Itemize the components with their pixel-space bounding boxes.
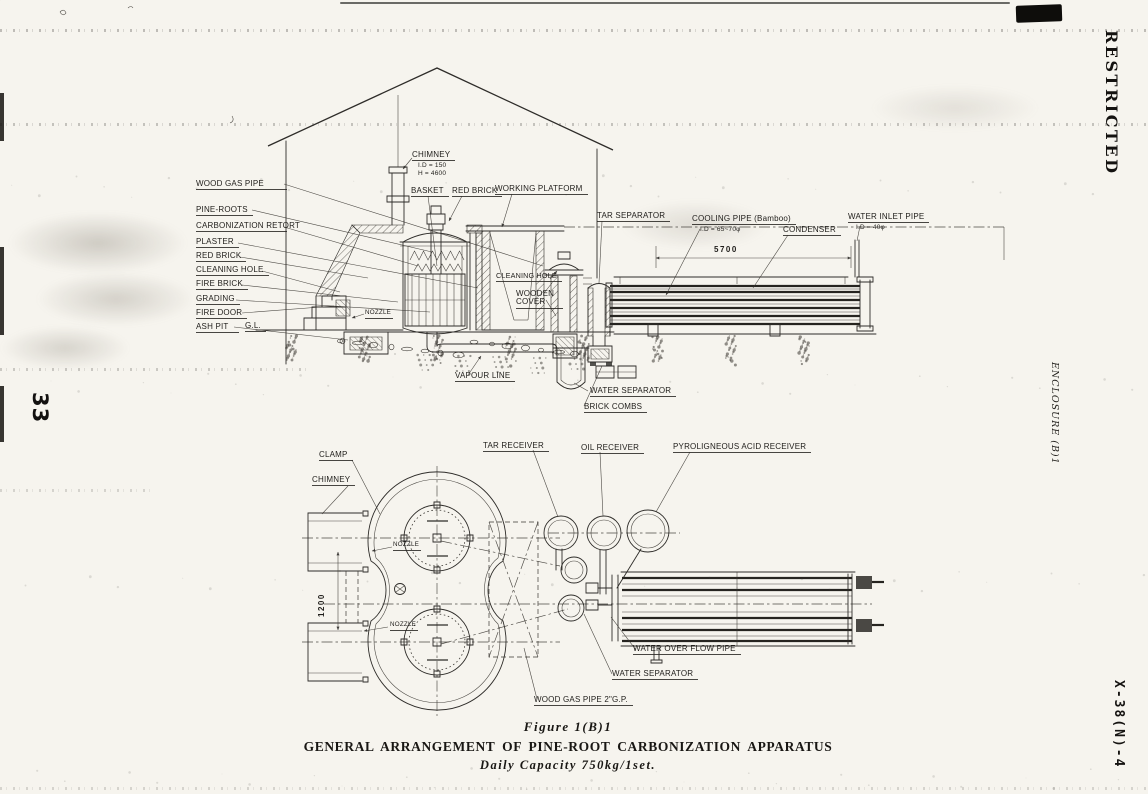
label-ash-pit: ASH PIT xyxy=(196,323,239,333)
drawing-canvas xyxy=(0,0,1148,794)
restricted-stamp: RESTRICTED xyxy=(1102,30,1121,162)
figure-number: Figure 1(B)1 xyxy=(288,719,848,735)
label-wood-gas-pipe: WOOD GAS PIPE xyxy=(196,180,287,190)
label-grading: GRADING xyxy=(196,295,240,305)
label-carbonization-retort: CARBONIZATION RETORT xyxy=(196,222,287,232)
brick-combs-section xyxy=(596,366,636,378)
cooling-pipes xyxy=(610,286,860,324)
plan-leader-lines xyxy=(322,450,690,699)
label-chimney-plan: CHIMNEY xyxy=(312,476,355,486)
dimension-5700-text: 5700 xyxy=(714,245,738,254)
label-working-platform: WORKING PLATFORM xyxy=(495,185,588,195)
dimension-1200-text: 1200 xyxy=(317,593,326,617)
condenser-section xyxy=(606,240,873,336)
water-separator-plan-group xyxy=(558,557,618,641)
stray-pen-marks xyxy=(60,7,233,124)
figure-caption: Figure 1(B)1 GENERAL ARRANGEMENT OF PINE… xyxy=(288,719,848,773)
label-water-inlet-pipe: WATER INLET PIPE xyxy=(848,213,929,223)
label-water-separator-plan: WATER SEPARATOR xyxy=(612,670,698,680)
label-pyroligneous-acid-receiver: PYROLIGNEOUS ACID RECEIVER xyxy=(673,443,811,453)
label-cleaning-hole: CLEANING HOLE xyxy=(196,266,269,276)
label-nozzle-plan-lower: NOZZLE xyxy=(390,622,418,631)
label-chimney-height: H = 4600 xyxy=(418,170,446,177)
label-ground-level: G.L. xyxy=(245,322,266,332)
label-brick-combs: BRICK COMBS xyxy=(584,403,647,413)
label-plaster: PLASTER xyxy=(196,238,239,248)
label-nozzle-plan-upper: NOZZLE xyxy=(393,542,421,551)
scan-speckles xyxy=(0,0,1145,790)
figure-title: GENERAL ARRANGEMENT OF PINE-ROOT CARBONI… xyxy=(288,739,848,755)
label-chimney-section: CHIMNEY xyxy=(412,151,455,161)
label-nozzle-section: NOZZLE xyxy=(365,310,393,319)
plan-view xyxy=(302,450,884,716)
label-fire-door: FIRE DOOR xyxy=(196,309,247,319)
label-basket: BASKET xyxy=(411,187,449,197)
section-view xyxy=(234,68,1004,406)
label-oil-receiver: OIL RECEIVER xyxy=(581,444,644,454)
label-wood-gas-pipe-plan: WOOD GAS PIPE 2"G.P. xyxy=(534,696,633,706)
receivers-plan xyxy=(544,510,669,594)
foundation-dashed-plan xyxy=(489,522,538,657)
label-water-overflow-pipe: WATER OVER FLOW PIPE xyxy=(633,645,741,655)
label-wooden-cover: WOODEN COVER xyxy=(516,290,563,309)
figure-subtitle: Daily Capacity 750kg/1set. xyxy=(288,758,848,773)
chimney-section xyxy=(387,95,409,225)
label-clamp: CLAMP xyxy=(319,451,353,461)
tar-separator-section xyxy=(588,284,612,367)
label-cleaning-hole-mid: CLEANING HOLE xyxy=(496,272,562,282)
vapour-line-section xyxy=(427,332,557,356)
enclosure-stamp: ENCLOSURE (B)1 xyxy=(1049,362,1060,474)
label-vapour-line: VAPOUR LINE xyxy=(455,372,515,382)
carbonization-retort-section xyxy=(400,206,470,334)
page-number: 33 xyxy=(28,392,52,436)
label-condenser: CONDENSER xyxy=(783,226,841,236)
label-water-inlet-id: I.D = 40φ xyxy=(856,224,885,231)
label-cooling-pipe-id: I.D = 65~70φ xyxy=(700,226,741,233)
label-red-brick: RED BRICK xyxy=(196,252,246,262)
label-fire-brick: FIRE BRICK xyxy=(196,280,248,290)
label-tar-receiver: TAR RECEIVER xyxy=(483,442,549,452)
scanned-drawing-page: WOOD GAS PIPE PINE-ROOTS CARBONIZATION R… xyxy=(0,0,1148,794)
label-pine-roots: PINE-ROOTS xyxy=(196,206,253,216)
label-cooling-pipe: COOLING PIPE (Bamboo) xyxy=(692,215,796,225)
label-water-separator-section: WATER SEPARATOR xyxy=(590,387,676,397)
label-chimney-id: I.D = 150 xyxy=(418,162,446,169)
doc-ref-stamp: X-38(N)-4 xyxy=(1111,680,1126,790)
label-tar-separator-section: TAR SEPARATOR xyxy=(597,212,670,222)
